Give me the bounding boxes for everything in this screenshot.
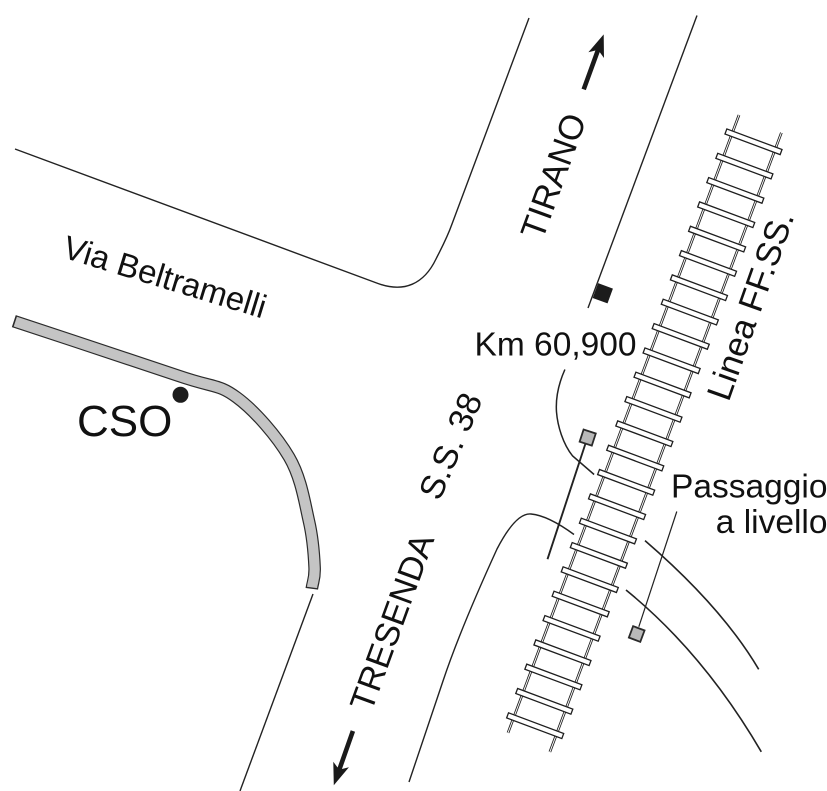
svg-text:CSO: CSO <box>77 397 172 446</box>
svg-text:Passaggio: Passaggio <box>671 469 827 506</box>
svg-text:Km 60,900: Km 60,900 <box>475 326 637 363</box>
svg-text:a livello: a livello <box>716 504 827 541</box>
